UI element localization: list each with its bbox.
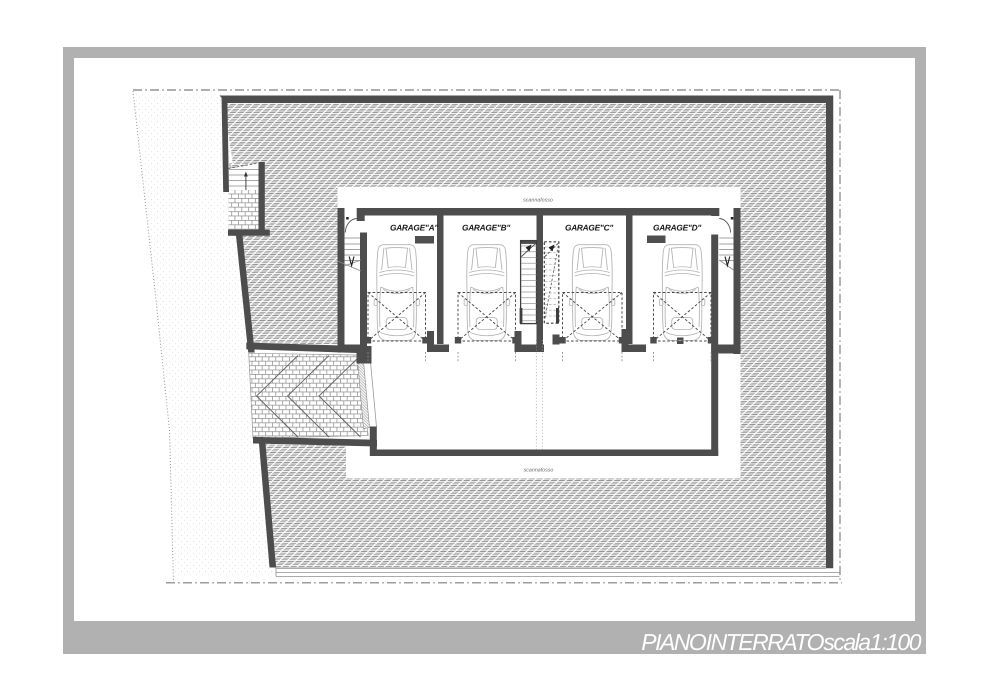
svg-text:PIANO INTERRATO scala 1:100: PIANO INTERRATO scala 1:100 [641, 629, 921, 655]
svg-text:scannafosso: scannafosso [523, 198, 553, 204]
svg-text:GARAGE"D": GARAGE"D" [653, 223, 702, 233]
svg-text:scannafosso: scannafosso [524, 468, 554, 474]
svg-text:GARAGE"C": GARAGE"C" [565, 223, 614, 233]
svg-text:GARAGE"A": GARAGE"A" [390, 223, 439, 233]
svg-text:GARAGE"B": GARAGE"B" [462, 223, 511, 233]
